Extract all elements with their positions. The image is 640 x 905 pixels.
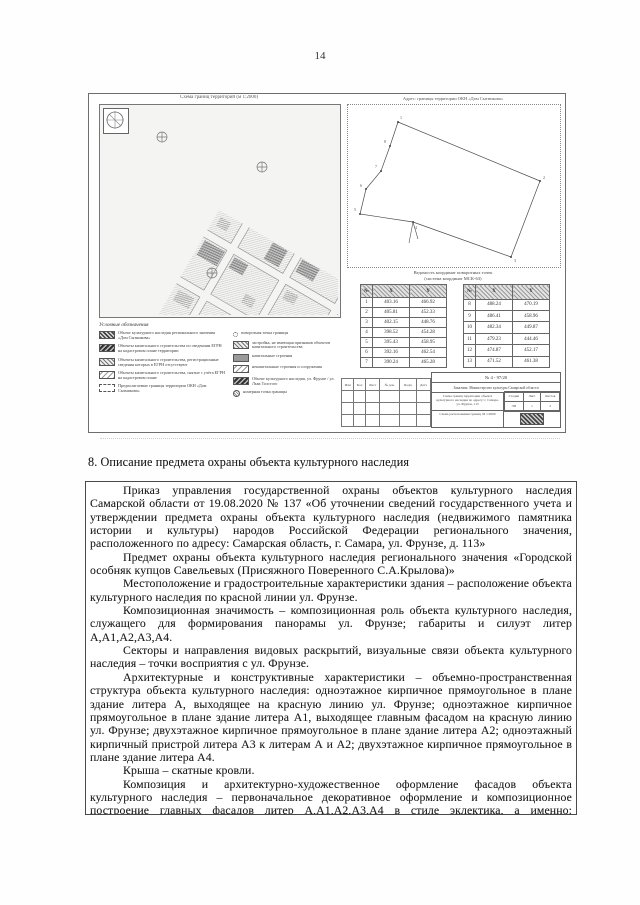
svg-text:6: 6 (360, 183, 362, 188)
city-plan-svg (100, 105, 338, 315)
hatch-mid-swatch-icon (233, 341, 249, 349)
drawing-title-block: № 4 - 97/20 Заказчик: Министерство культ… (431, 372, 561, 428)
coord-row: 9486.41458.96 (464, 311, 550, 322)
sig-cell (342, 403, 354, 415)
coord-row: 7390.24465.28 (361, 358, 447, 368)
mini-value: 2 (541, 401, 560, 411)
mini-value: ЭП (505, 401, 524, 411)
svg-text:7: 7 (375, 164, 377, 169)
coord-cell: 403.16 (373, 298, 410, 308)
coord-row: 6392.16462.54 (361, 348, 447, 358)
coord-row: 4398.52454.28 (361, 328, 447, 338)
svg-text:2: 2 (543, 175, 545, 180)
legend-item: Объекты капитального строительства, реги… (99, 358, 225, 368)
legend-item: некапитальные строения и сооружения (233, 365, 335, 373)
coord-cell: 449.87 (513, 322, 550, 333)
stamp-sheet-title: Схема расположения границ, М 1:2000 (432, 411, 504, 427)
svg-text:4: 4 (415, 225, 417, 230)
coord-cell: 458.95 (410, 338, 447, 348)
coord-row: 5395.43458.95 (361, 338, 447, 348)
sig-cell (354, 391, 366, 403)
coord-cell: 1 (361, 298, 373, 308)
legend-label: Объект культурного наследия, ул. Фрунзе … (252, 377, 335, 387)
page-number: 14 (0, 50, 640, 62)
coord-cell: 465.28 (410, 358, 447, 368)
legend-label: поворотная точка границы (241, 331, 288, 336)
coord-row: 2405.81452.33 (361, 308, 447, 318)
legend-label: некапитальные строения и сооружения (252, 365, 322, 370)
map-title: Схема границ территорий (м 1:2000) (99, 95, 339, 100)
coord-cell: 11 (464, 333, 476, 344)
coord-cell: 398.52 (373, 328, 410, 338)
circle-swatch-icon (233, 390, 240, 397)
section-heading: 8. Описание предмета охраны объекта куль… (88, 455, 568, 470)
coord-column-header: X (476, 285, 513, 300)
sig-header-cell: Подп. (400, 379, 417, 391)
legend-label: Предполагаемые границы территории ОКН «Д… (118, 384, 225, 394)
hatch-darker-swatch-icon (233, 377, 249, 385)
coord-cell: 486.41 (476, 311, 513, 322)
city-plan-map (99, 104, 341, 318)
coord-cell: 3 (361, 318, 373, 328)
gray-swatch-icon (233, 354, 249, 362)
coord-row: 1403.16466.92 (361, 298, 447, 308)
coord-cell: 454.28 (410, 328, 447, 338)
coord-cell: 482.34 (476, 322, 513, 333)
sig-cell (417, 391, 431, 403)
sig-cell (354, 403, 366, 415)
coord-row: 13471.52461.38 (464, 356, 550, 367)
coord-cell: 452.17 (513, 345, 550, 356)
boundary-points (359, 121, 541, 258)
hatch-mid-swatch-icon (99, 358, 115, 366)
hatch-darker-swatch-icon (99, 344, 115, 352)
boundary-polygon (360, 122, 540, 257)
coord-cell: 392.16 (373, 348, 410, 358)
sig-cell (400, 403, 417, 415)
coord-column-header: № (361, 285, 373, 298)
legend-left-column: Объект культурного наследия региональног… (99, 331, 225, 401)
paragraph: Местоположение и градостроительные харак… (90, 577, 572, 604)
coord-cell: 474.87 (476, 345, 513, 356)
scan-artifact-line (100, 438, 560, 439)
stamp-object-description: Схема границ территории объекта культурн… (432, 393, 504, 410)
coord-row: 11479.23444.46 (464, 333, 550, 344)
paragraph: Композиционная значимость – композиционн… (90, 604, 572, 644)
coord-row: 10482.34449.87 (464, 322, 550, 333)
coord-column-header: Y (410, 285, 447, 298)
stamp-doc-number: № 4 - 97/20 (432, 373, 560, 383)
coord-cell: 390.24 (373, 358, 410, 368)
boundary-point-labels: 1 2 3 4 5 6 7 8 (354, 115, 545, 263)
coords-caption-line2: (система координат МСК-63) (347, 276, 559, 282)
coord-cell: 8 (464, 299, 476, 310)
paragraph: Композиция и архитектурно-художественное… (90, 778, 572, 815)
legend-label: застройка, не имеющая признаков объектов… (252, 341, 335, 351)
stamp-hatch-chip (520, 413, 544, 425)
sig-cell (365, 403, 380, 415)
sig-cell (400, 415, 417, 427)
paragraph: Крыша – скатные кровли. (90, 764, 572, 777)
coordinate-table-right: №XY8488.24470.199486.41458.9610482.34449… (463, 284, 550, 368)
coord-cell: 471.52 (476, 356, 513, 367)
legend-item: Объекты капитального строительства по св… (99, 344, 225, 354)
legend-label: капитальные строения (252, 354, 292, 359)
coord-cell: 452.33 (410, 308, 447, 318)
sig-cell (365, 415, 380, 427)
coord-cell: 466.92 (410, 298, 447, 308)
coord-column-header: Y (513, 285, 550, 300)
signature-table: ИзмКолЛист№ док.Подп.Дата (341, 378, 431, 427)
legend-item: номерная точка границы (233, 390, 335, 397)
coordinate-tables: №XY1403.16466.922405.81452.333402.15448.… (355, 284, 555, 368)
legend-label: Объект культурного наследия региональног… (118, 331, 225, 341)
coordinate-table-left: №XY1403.16466.922405.81452.333402.15448.… (360, 284, 447, 368)
paragraph: Секторы и направления видовых раскрытий,… (90, 644, 572, 671)
coords-table-caption: Ведомость координат поворотных точек (си… (347, 270, 559, 281)
sig-header-cell: Дата (417, 379, 431, 391)
coord-cell: 10 (464, 322, 476, 333)
coord-cell: 13 (464, 356, 476, 367)
map-legend: Условные обозначения Объект культурного … (99, 322, 337, 401)
mini-header: Листов (541, 391, 560, 401)
heritage-boundary-figure: Схема границ территорий (м 1:2000) (88, 93, 566, 433)
protection-text-box: Приказ управления государственной охраны… (85, 481, 577, 815)
legend-item: поворотная точка границы (233, 331, 335, 337)
legend-title: Условные обозначения (99, 322, 337, 328)
hatch-dark-swatch-icon (99, 331, 115, 339)
sig-header-cell: № док. (380, 379, 400, 391)
stamp-mini-table: Стадия Лист Листов ЭП 1 2 (504, 391, 560, 412)
coord-cell: 2 (361, 308, 373, 318)
stamp-signature-grid: ИзмКолЛист№ док.Подп.Дата (341, 378, 431, 427)
coord-cell: 470.19 (513, 299, 550, 310)
paragraph: Приказ управления государственной охраны… (90, 484, 572, 551)
boundary-diagram: 1 2 3 4 5 6 7 8 (347, 104, 561, 268)
sig-header-cell: Изм (342, 379, 354, 391)
legend-label: Объекты капитального строительства, снят… (118, 371, 225, 381)
legend-item: Объект культурного наследия региональног… (99, 331, 225, 341)
coord-cell: 488.24 (476, 299, 513, 310)
coord-row: 8488.24470.19 (464, 299, 550, 310)
coord-cell: 444.46 (513, 333, 550, 344)
legend-right-column: поворотная точка границызастройка, не им… (233, 331, 335, 401)
coord-cell: 402.15 (373, 318, 410, 328)
sig-header-cell: Лист (365, 379, 380, 391)
sig-cell (380, 415, 400, 427)
svg-text:1: 1 (400, 115, 402, 120)
legend-label: номерная точка границы (243, 390, 287, 395)
coord-row: 3402.15448.76 (361, 318, 447, 328)
coord-cell: 405.81 (373, 308, 410, 318)
paragraph: Предмет охраны объекта культурного насле… (90, 551, 572, 578)
hatch-light-swatch-icon (99, 371, 115, 379)
sig-cell (342, 391, 354, 403)
coord-cell: 6 (361, 348, 373, 358)
boundary-polygon-svg: 1 2 3 4 5 6 7 8 (348, 105, 560, 267)
sig-cell (380, 403, 400, 415)
legend-item: Предполагаемые границы территории ОКН «Д… (99, 384, 225, 394)
sig-cell (354, 415, 366, 427)
coord-cell: 7 (361, 358, 373, 368)
sig-cell (342, 415, 354, 427)
city-blocks (100, 105, 338, 315)
coord-cell: 5 (361, 338, 373, 348)
svg-text:5: 5 (354, 207, 356, 212)
coord-cell: 9 (464, 311, 476, 322)
coord-cell: 458.96 (513, 311, 550, 322)
legend-item: Объекты капитального строительства, снят… (99, 371, 225, 381)
sig-cell (400, 391, 417, 403)
legend-item: Объект культурного наследия, ул. Фрунзе … (233, 377, 335, 387)
compass-icon (103, 108, 129, 134)
boundary-diagram-title: Адрес: границы территории ОКН «Дом Сытни… (347, 96, 559, 101)
coord-cell: 395.43 (373, 338, 410, 348)
coord-cell: 4 (361, 328, 373, 338)
paragraph: Архитектурные и конструктивные характери… (90, 671, 572, 764)
legend-label: Объекты капитального строительства, реги… (118, 358, 225, 368)
coord-column-header: X (373, 285, 410, 298)
sig-cell (417, 403, 431, 415)
mini-value: 1 (523, 401, 541, 411)
dashed-box-swatch-icon (99, 384, 115, 392)
coord-cell: 461.38 (513, 356, 550, 367)
mini-header: Стадия (505, 391, 524, 401)
coord-row: 12474.87452.17 (464, 345, 550, 356)
sig-cell (380, 391, 400, 403)
coord-cell: 479.23 (476, 333, 513, 344)
sig-header-cell: Кол (354, 379, 366, 391)
coord-column-header: № (464, 285, 476, 300)
hatch-light-swatch-icon (233, 365, 249, 373)
mini-header: Лист (523, 391, 541, 401)
legend-item: застройка, не имеющая признаков объектов… (233, 341, 335, 351)
svg-text:8: 8 (384, 139, 386, 144)
svg-text:3: 3 (514, 258, 516, 263)
coord-cell: 462.54 (410, 348, 447, 358)
legend-label: Объекты капитального строительства по св… (118, 344, 225, 354)
legend-item: капитальные строения (233, 354, 335, 362)
coord-cell: 12 (464, 345, 476, 356)
dot-swatch-icon (233, 332, 238, 337)
sig-cell (365, 391, 380, 403)
coord-cell: 448.76 (410, 318, 447, 328)
sig-cell (417, 415, 431, 427)
